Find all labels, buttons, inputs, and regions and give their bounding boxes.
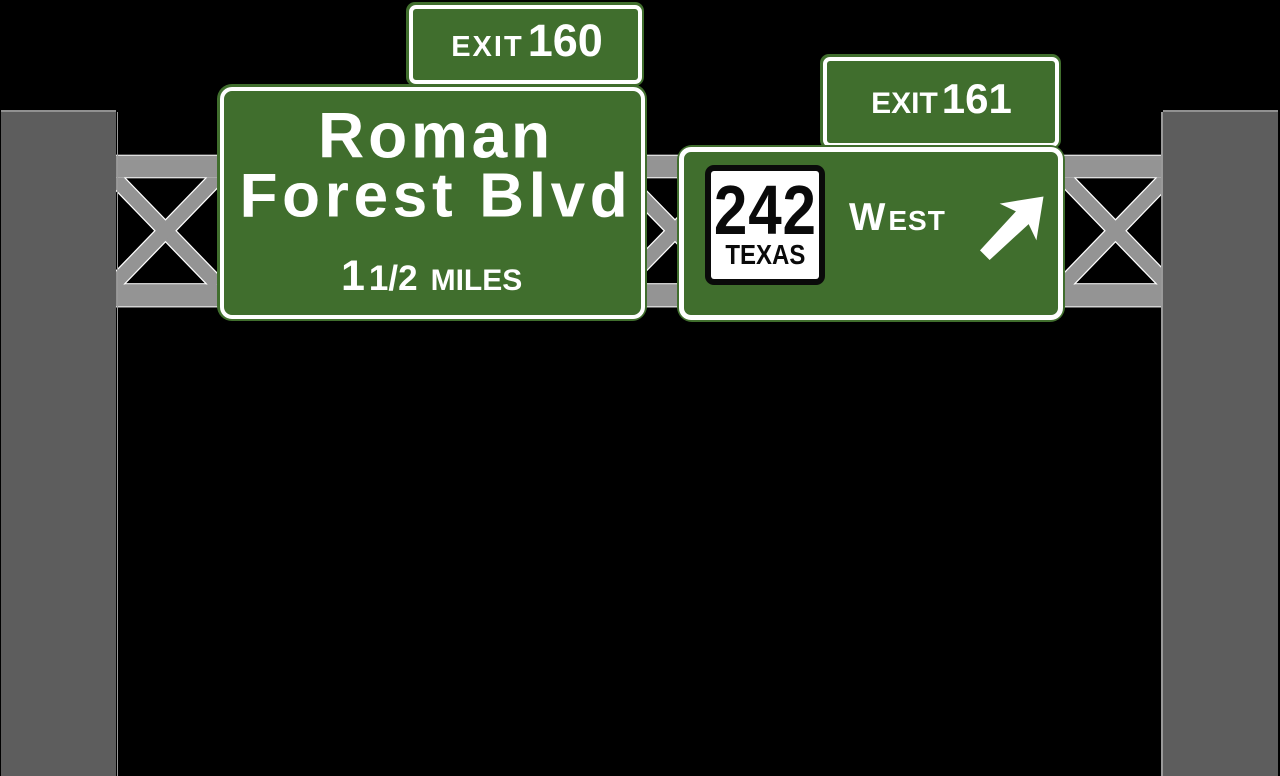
svg-text:EXIT160: EXIT160 bbox=[451, 15, 603, 66]
svg-text:TEXAS: TEXAS bbox=[725, 239, 805, 270]
svg-text:11/2MILES: 11/2MILES bbox=[341, 252, 522, 300]
svg-text:Forest Blvd: Forest Blvd bbox=[240, 162, 633, 231]
svg-text:WEST: WEST bbox=[849, 196, 946, 239]
svg-text:EXIT161: EXIT161 bbox=[871, 75, 1012, 122]
svg-text:242: 242 bbox=[714, 171, 817, 249]
svg-text:Roman: Roman bbox=[318, 99, 554, 171]
